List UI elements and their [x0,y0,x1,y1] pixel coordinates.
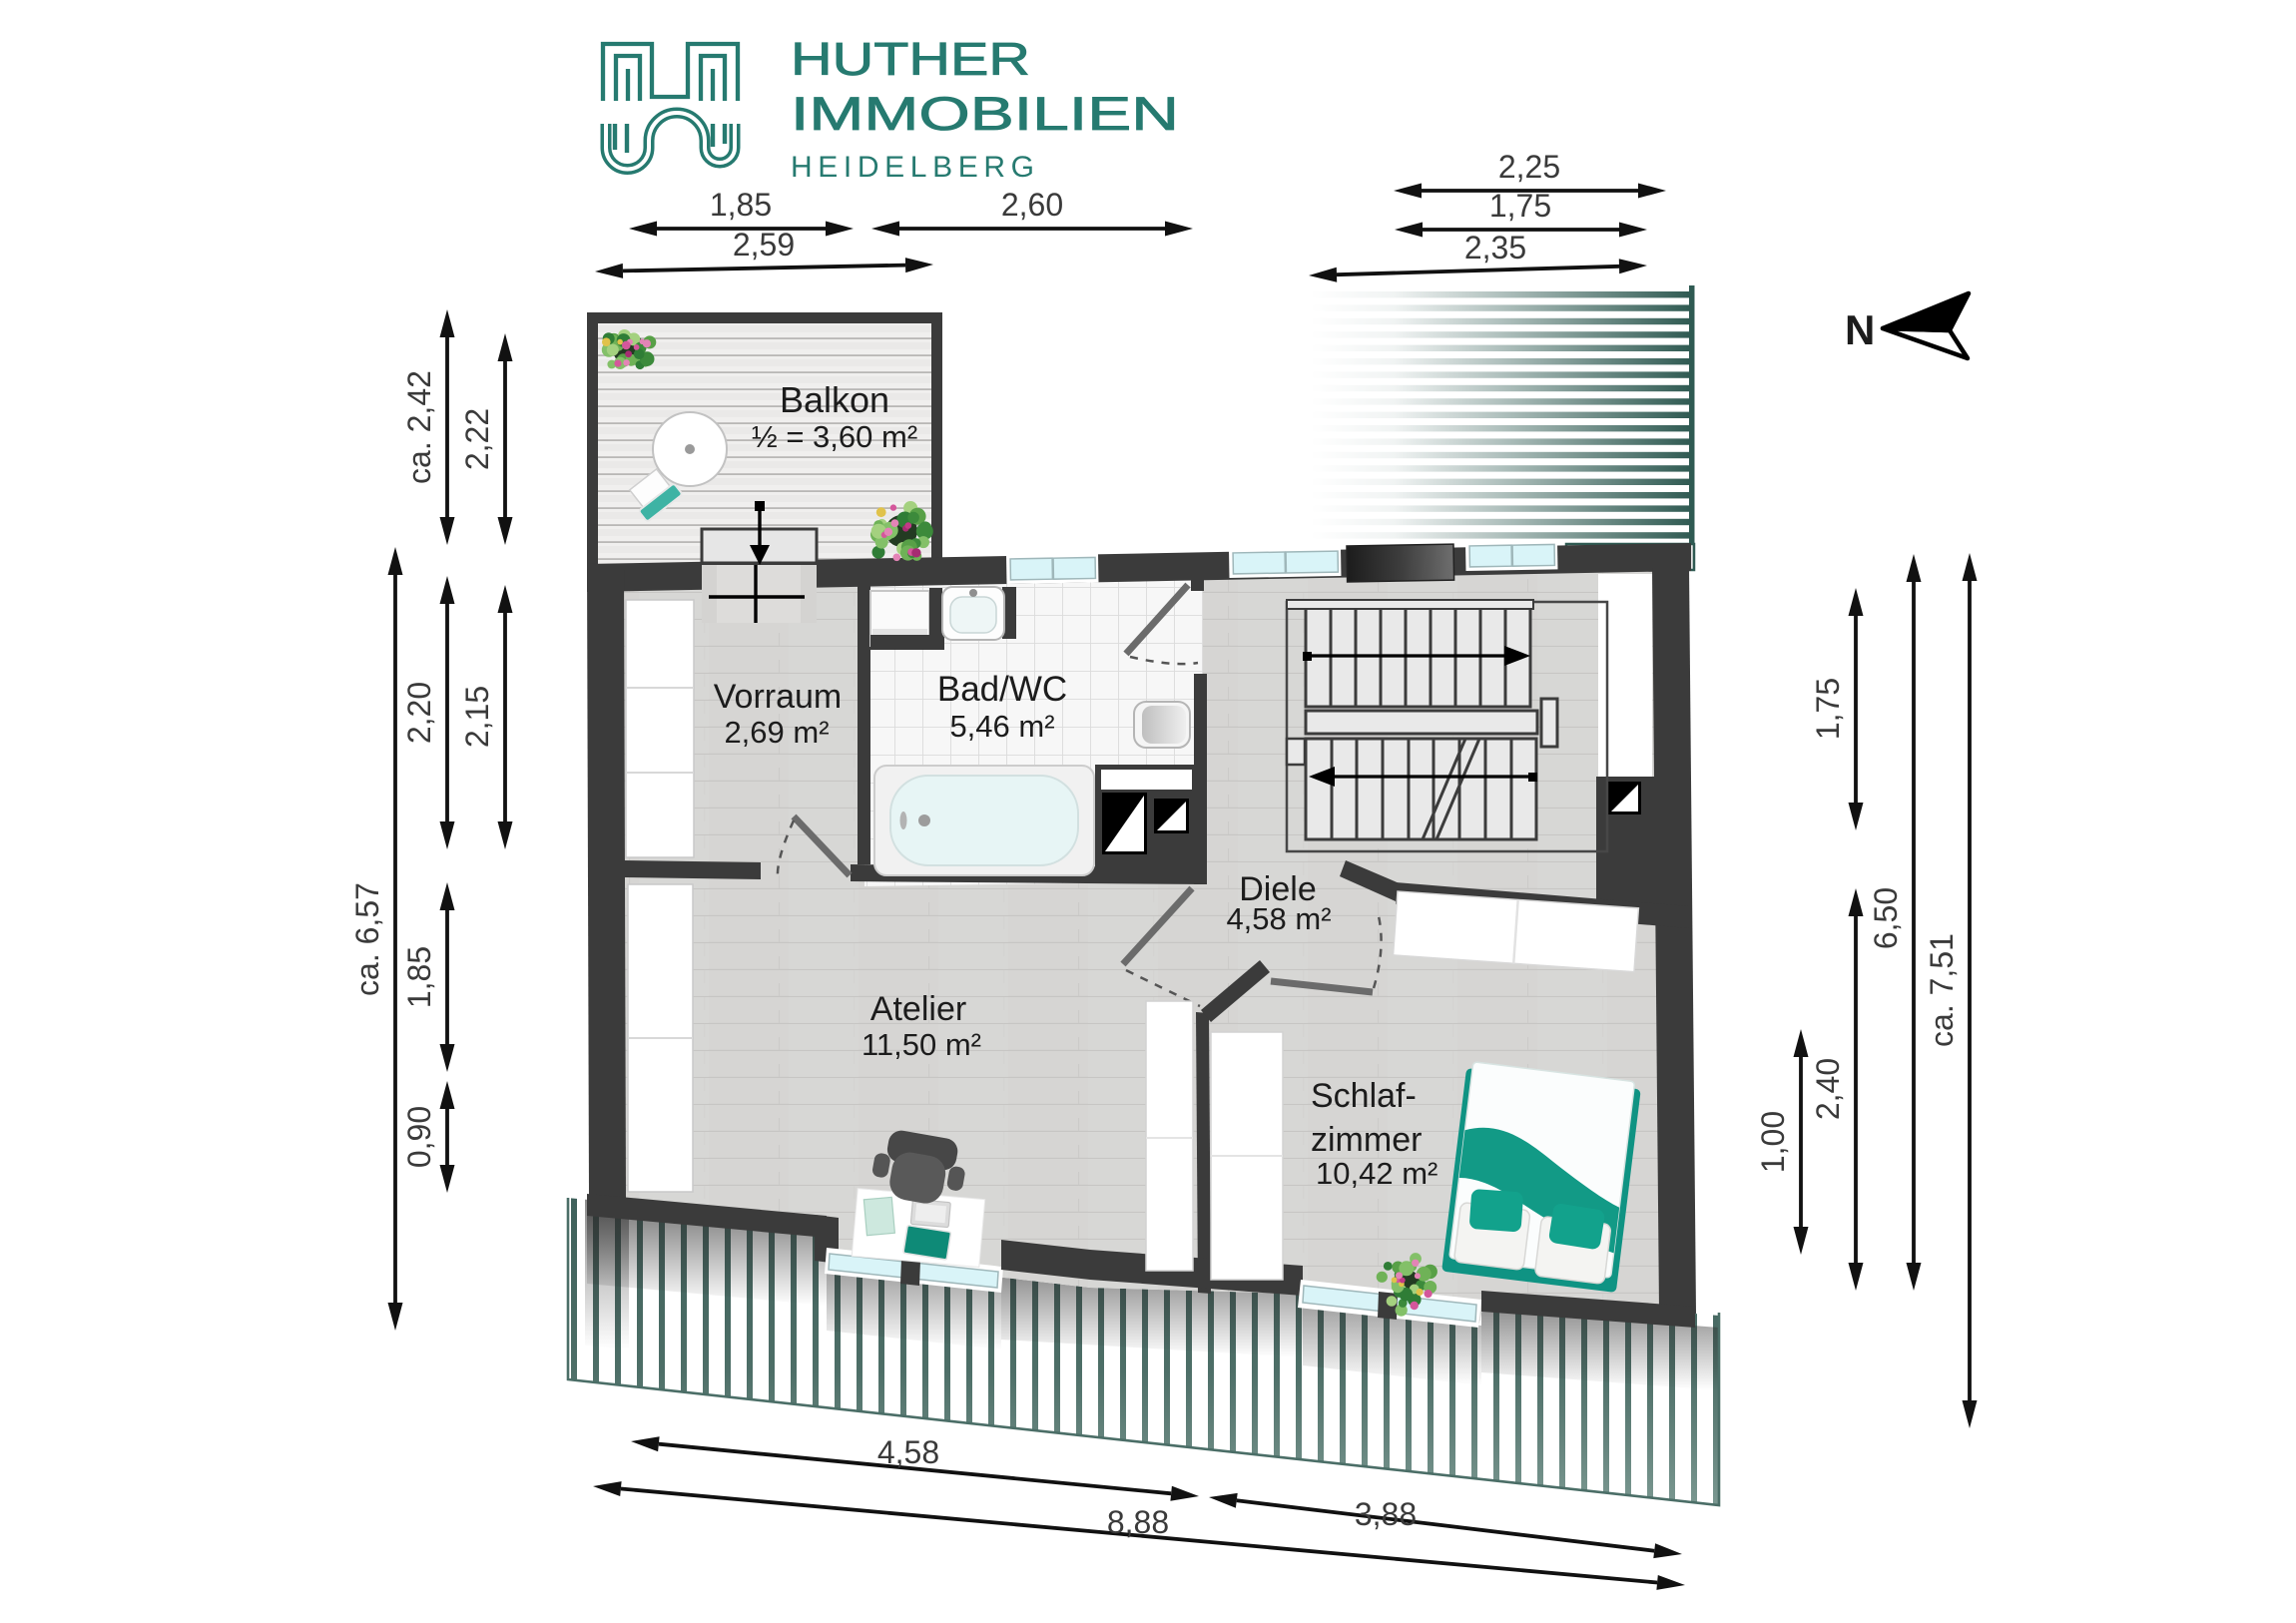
svg-text:2,59: 2,59 [733,227,795,263]
svg-text:ca. 2,42: ca. 2,42 [401,370,437,484]
svg-text:Vorraum: Vorraum [714,678,843,716]
svg-text:IMMOBILIEN: IMMOBILIEN [791,87,1179,140]
svg-text:2,60: 2,60 [1001,187,1063,223]
svg-text:4,58 m²: 4,58 m² [1226,901,1331,936]
svg-text:1,85: 1,85 [710,187,772,223]
svg-text:2,35: 2,35 [1464,230,1526,266]
svg-text:2,15: 2,15 [459,686,495,748]
svg-text:HUTHER: HUTHER [791,33,1030,85]
svg-text:1,75: 1,75 [1489,188,1551,224]
svg-text:1,00: 1,00 [1755,1111,1791,1173]
svg-text:Schlaf-: Schlaf- [1311,1077,1417,1115]
svg-text:3,88: 3,88 [1355,1496,1417,1532]
svg-text:11,50 m²: 11,50 m² [861,1027,981,1062]
svg-text:4,58: 4,58 [877,1434,939,1470]
svg-text:½ = 3,60 m²: ½ = 3,60 m² [752,419,917,454]
svg-text:8,88: 8,88 [1107,1504,1169,1540]
svg-text:zimmer: zimmer [1311,1121,1422,1159]
svg-text:2,40: 2,40 [1810,1058,1846,1120]
svg-text:Bad/WC: Bad/WC [937,670,1067,709]
svg-text:0,90: 0,90 [401,1106,437,1168]
svg-text:5,46 m²: 5,46 m² [949,709,1054,744]
svg-text:10,42 m²: 10,42 m² [1316,1156,1437,1191]
svg-text:1,75: 1,75 [1810,678,1846,740]
svg-text:ca. 7,51: ca. 7,51 [1924,933,1960,1047]
svg-text:Balkon: Balkon [780,379,889,420]
svg-text:N: N [1845,306,1875,353]
svg-text:2,69 m²: 2,69 m² [724,715,829,750]
svg-text:2,22: 2,22 [459,408,495,470]
svg-text:2,20: 2,20 [401,682,437,744]
svg-text:1,85: 1,85 [401,946,437,1008]
svg-text:Atelier: Atelier [870,990,966,1028]
svg-text:6,50: 6,50 [1868,887,1904,949]
svg-text:ca. 6,57: ca. 6,57 [349,882,385,996]
svg-text:2,25: 2,25 [1498,149,1560,185]
svg-text:HEIDELBERG: HEIDELBERG [791,151,1035,184]
